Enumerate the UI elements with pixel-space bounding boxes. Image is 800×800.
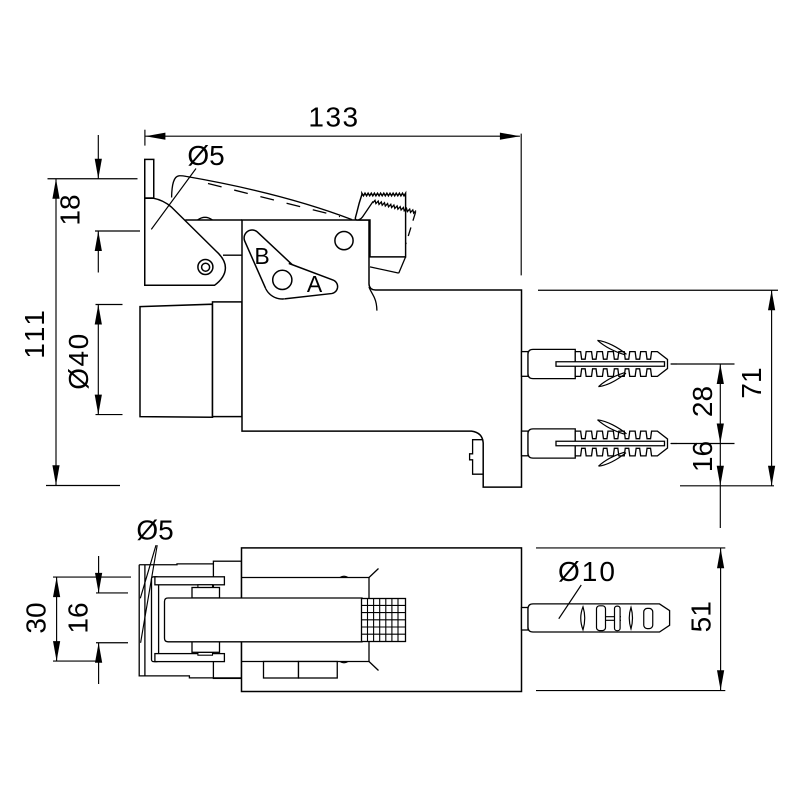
svg-text:51: 51 [686,601,717,632]
svg-text:111: 111 [19,307,50,359]
svg-text:Ø40: Ø40 [63,332,94,389]
svg-text:Ø5: Ø5 [136,515,173,546]
svg-text:18: 18 [55,194,86,225]
svg-text:B: B [254,243,269,269]
svg-text:28: 28 [687,386,718,417]
svg-text:16: 16 [687,441,718,472]
svg-text:Ø10: Ø10 [558,556,617,587]
svg-text:71: 71 [736,367,767,398]
svg-text:16: 16 [63,602,94,633]
svg-text:30: 30 [21,602,52,633]
svg-text:133: 133 [308,102,359,133]
svg-text:Ø5: Ø5 [187,140,224,171]
svg-text:A: A [307,271,323,297]
